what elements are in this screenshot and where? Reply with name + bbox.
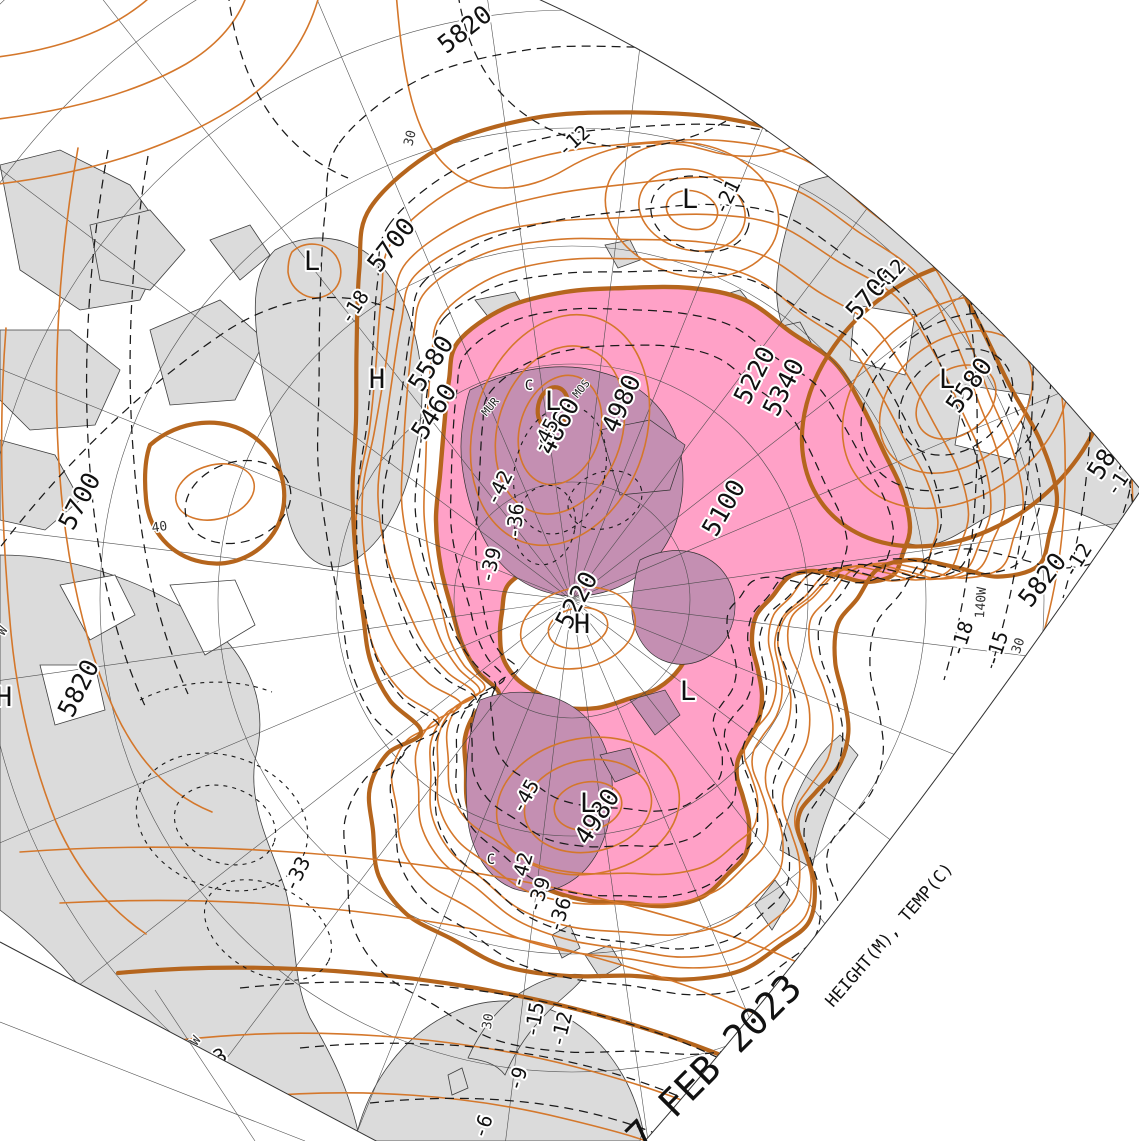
land-polygon — [780, 735, 858, 868]
vortex-center-mark: C — [525, 378, 533, 394]
land-under-shading — [632, 551, 735, 665]
weather-map-svg: 5820570055805460486049805100522053405580… — [0, 0, 1139, 1141]
temp-contour — [228, 0, 348, 178]
pressure-center-label: L — [580, 788, 596, 819]
temp-label: -12 — [552, 120, 595, 162]
pressure-center-label: H — [574, 609, 590, 640]
pressure-center-label: H — [0, 682, 12, 713]
pressure-center-label: H — [369, 364, 385, 395]
pressure-center-label: L — [680, 676, 696, 707]
height-contour — [0, 0, 248, 120]
map-legend: HEIGHT(M), TEMP(C) — [822, 859, 958, 1011]
temp-label: -15 — [979, 628, 1013, 670]
pressure-center-label: L — [939, 364, 955, 395]
graticule-label: 30 — [480, 1012, 497, 1030]
land-polygon — [585, 945, 622, 978]
land-polygon — [90, 210, 185, 290]
graticule-label: 140W — [973, 586, 990, 618]
height-label: 5820 — [432, 0, 497, 59]
graticule-label: 40 — [151, 519, 169, 536]
land-polygon — [150, 300, 265, 405]
pressure-center-label: L — [682, 184, 698, 215]
graticule-label: W — [273, 1107, 290, 1122]
height-label: 5700 — [361, 212, 421, 277]
vortex-center-mark: C — [487, 852, 495, 868]
temp-label: -21 — [708, 175, 745, 218]
pressure-center-label: L — [545, 386, 561, 417]
height-contour — [169, 456, 260, 529]
graticule-label: 30 — [401, 129, 419, 148]
temp-label: -36 — [501, 502, 529, 540]
height-contour — [0, 0, 158, 58]
pressure-center-label: L — [304, 246, 320, 277]
land-polygon — [0, 330, 120, 430]
temp-label: -18 — [944, 618, 978, 660]
map-date: 7 FEB 2023 — [617, 965, 810, 1141]
weather-map-page: 5820570055805460486049805100522053405580… — [0, 0, 1139, 1141]
